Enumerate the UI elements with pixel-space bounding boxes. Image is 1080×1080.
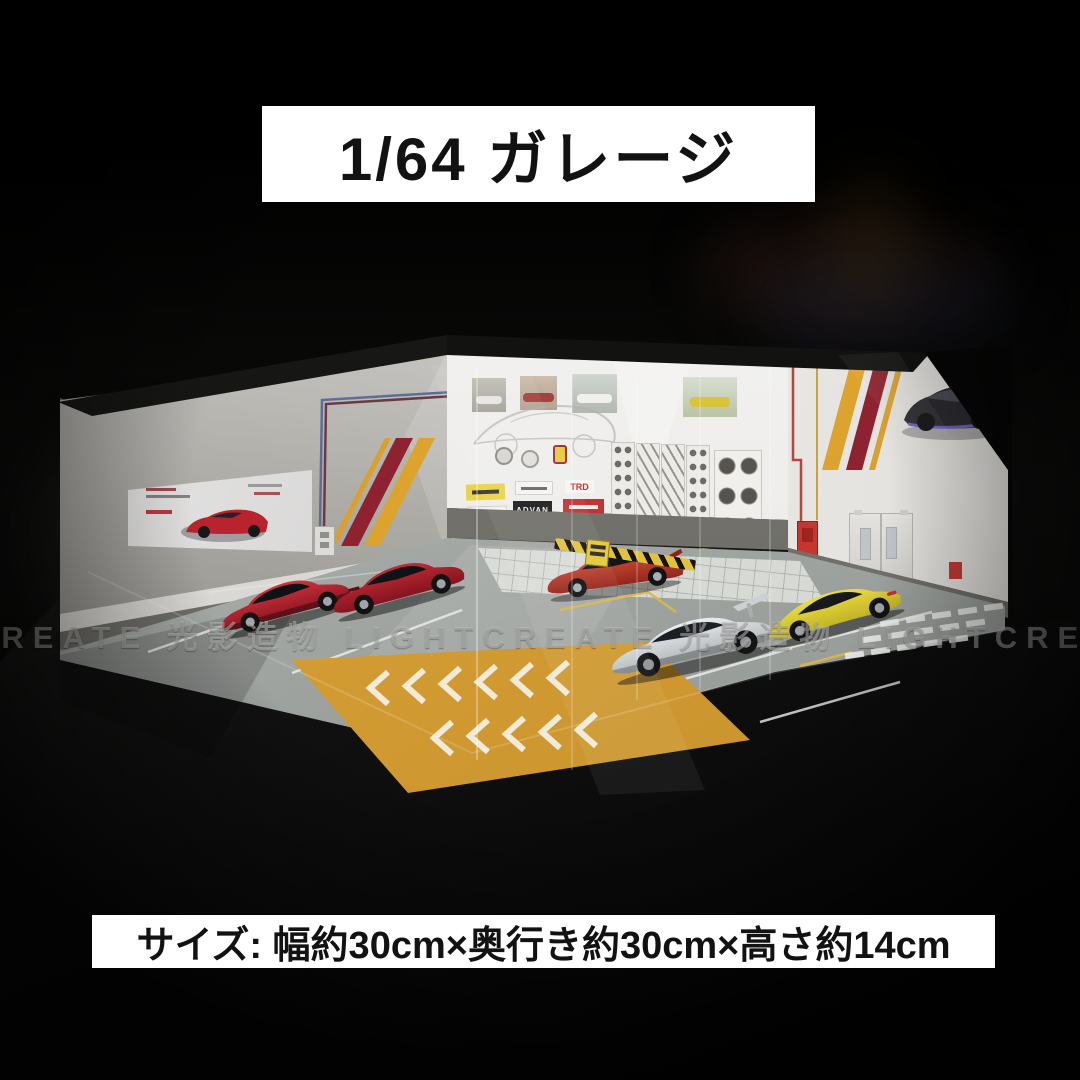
watermark-text: CREATE 光影造物 LIGHTCREATE 光影造物 LIGHTCREATE… (0, 612, 1080, 657)
product-photo: ADVAN TRD (0, 0, 1080, 1080)
size-text: サイズ: 幅約30cm×奥行き約30cm×高さ約14cm (136, 914, 950, 969)
size-banner: サイズ: 幅約30cm×奥行き約30cm×高さ約14cm (92, 915, 995, 968)
title-text: 1/64 ガレージ (339, 111, 738, 198)
title-banner: 1/64 ガレージ (262, 106, 815, 202)
